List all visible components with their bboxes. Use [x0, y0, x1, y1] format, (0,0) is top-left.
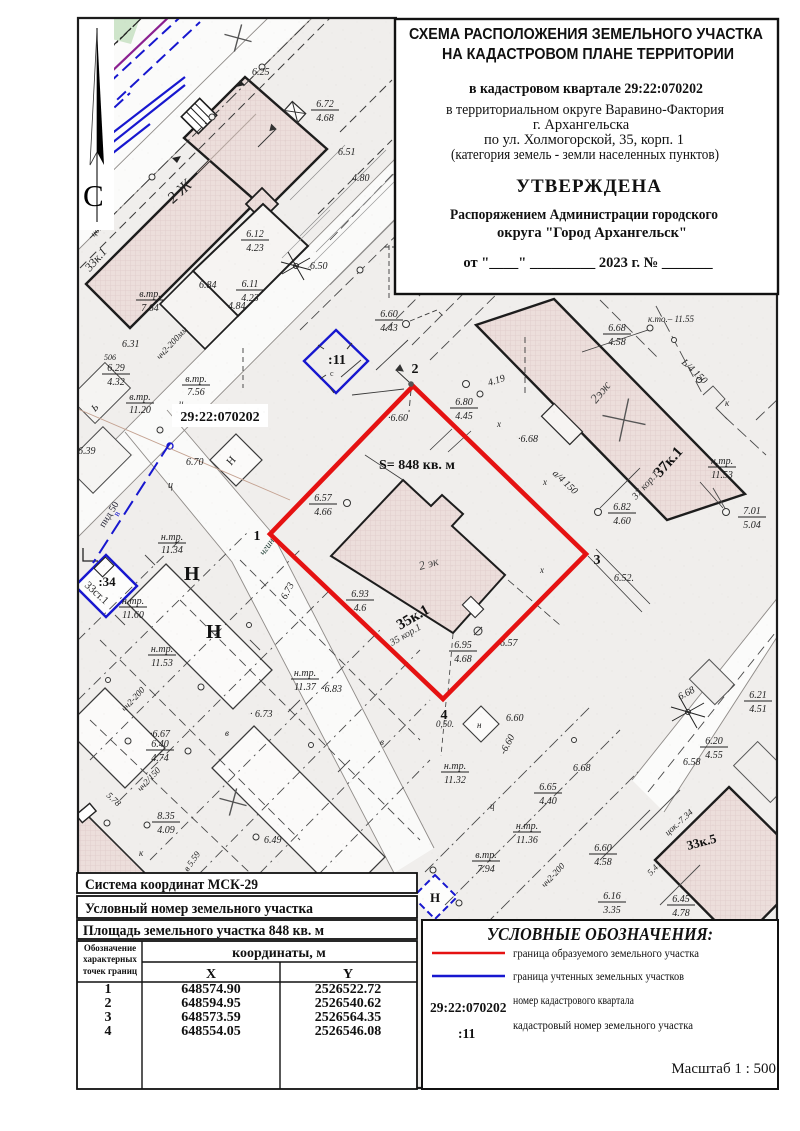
svg-text:648594.95: 648594.95	[181, 996, 241, 1011]
svg-text:по ул. Холмогорской, 35, корп.: по ул. Холмогорской, 35, корп. 1	[484, 132, 684, 148]
svg-text:округа "Город Архангельск": округа "Город Архангельск"	[497, 225, 687, 241]
svg-text:от "____" _________ 2023 г.: от "____" _________ 2023 г. № _______	[463, 255, 713, 271]
svg-text:СХЕМА РАСПОЛОЖЕНИЯ ЗЕМЕЛЬНОГО: СХЕМА РАСПОЛОЖЕНИЯ ЗЕМЕЛЬНОГО УЧАСТКА	[409, 26, 763, 43]
svg-text:2526564.35: 2526564.35	[315, 1010, 382, 1025]
svg-text:координаты, м: координаты, м	[232, 946, 326, 961]
svg-text:номер кадастрового квартала: номер кадастрового квартала	[513, 993, 635, 1007]
svg-text:X: X	[206, 967, 216, 982]
svg-text:1: 1	[105, 982, 112, 997]
svg-text:2526522.72: 2526522.72	[315, 982, 382, 997]
svg-text:граница учтенных земельных уча: граница учтенных земельных участков	[513, 969, 684, 983]
svg-text:2: 2	[105, 996, 112, 1011]
svg-text:г. Архангельска: г. Архангельска	[533, 117, 630, 133]
svg-text:в территориальном округе Вара: в территориальном округе Варавино-Фактор…	[446, 102, 724, 118]
svg-text:Обозначение: Обозначение	[84, 943, 136, 953]
svg-text:С: С	[83, 178, 104, 213]
svg-text:Площадь земельного участка 84: Площадь земельного участка 848 кв. м	[83, 923, 324, 939]
svg-text:Условный номер земельного учас: Условный номер земельного участка	[85, 901, 314, 917]
svg-text:(категория земель - земли насе: (категория земель - земли населенных пун…	[451, 147, 719, 163]
svg-text:4: 4	[105, 1024, 112, 1039]
svg-text:точек границ: точек границ	[83, 966, 138, 976]
svg-text:характерных: характерных	[83, 954, 137, 964]
svg-text:граница образуемого земельного: граница образуемого земельного участка	[513, 946, 700, 960]
svg-text:УСЛОВНЫЕ ОБОЗНАЧЕНИЯ:: УСЛОВНЫЕ ОБОЗНАЧЕНИЯ:	[487, 924, 713, 944]
svg-text:648574.90: 648574.90	[181, 982, 241, 997]
svg-text:УТВЕРЖДЕНА: УТВЕРЖДЕНА	[516, 176, 662, 197]
svg-text:Масштаб 1 : 500: Масштаб 1 : 500	[671, 1061, 776, 1077]
svg-text:3: 3	[105, 1010, 112, 1025]
svg-text:29:22:070202: 29:22:070202	[430, 1000, 507, 1015]
svg-text:648554.05: 648554.05	[181, 1024, 241, 1039]
svg-text:2526546.08: 2526546.08	[315, 1024, 382, 1039]
svg-text:Y: Y	[343, 967, 353, 982]
svg-text:НА КАДАСТРОВОМ ПЛАНЕ ТЕРРИТОРИ: НА КАДАСТРОВОМ ПЛАНЕ ТЕРРИТОРИИ	[442, 46, 734, 63]
svg-text:2526540.62: 2526540.62	[315, 996, 382, 1011]
svg-text:Система координат МСК-29: Система координат МСК-29	[85, 877, 258, 893]
svg-text:в кадастровом квартале 29:22:0: в кадастровом квартале 29:22:070202	[469, 81, 703, 97]
svg-text:648573.59: 648573.59	[181, 1010, 241, 1025]
svg-text:кадастровый номер земельного у: кадастровый номер земельного участка	[513, 1018, 694, 1032]
svg-text::11: :11	[458, 1026, 476, 1041]
svg-text:Распоряжением Администрации го: Распоряжением Администрации городского	[450, 207, 718, 223]
